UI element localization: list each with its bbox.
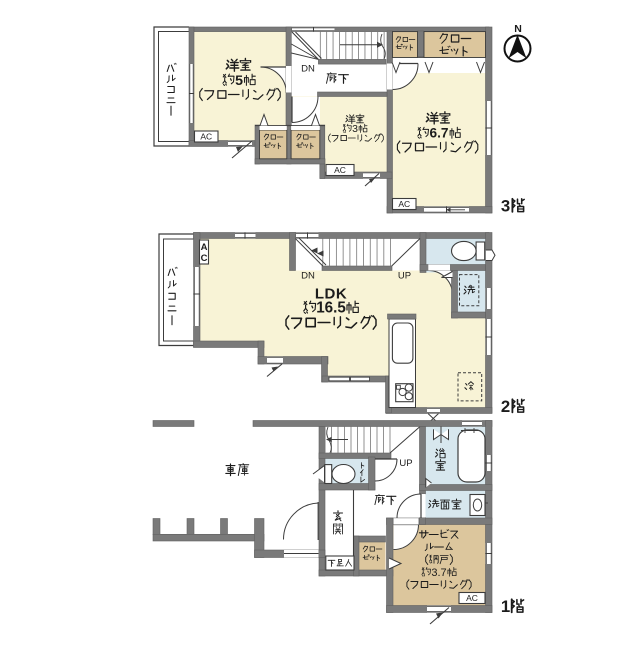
- svg-text:DN: DN: [301, 64, 315, 75]
- svg-text:6.7: 6.7: [430, 126, 449, 141]
- svg-text:AC: AC: [466, 593, 478, 603]
- svg-text:3: 3: [352, 123, 358, 135]
- svg-text:UP: UP: [399, 458, 412, 469]
- svg-text:C: C: [201, 253, 208, 264]
- svg-text:2: 2: [501, 397, 510, 416]
- svg-text:3: 3: [501, 196, 510, 215]
- svg-text:UP: UP: [398, 271, 411, 282]
- svg-text:A: A: [201, 242, 208, 253]
- svg-text:DN: DN: [301, 271, 315, 282]
- svg-text:AC: AC: [334, 165, 346, 175]
- svg-text:AC: AC: [200, 132, 212, 142]
- svg-text:16.5: 16.5: [316, 300, 346, 317]
- svg-text:1: 1: [501, 597, 510, 616]
- svg-text:5: 5: [235, 73, 243, 89]
- svg-text:N: N: [514, 23, 522, 35]
- svg-text:3.7: 3.7: [431, 567, 446, 579]
- svg-text:AC: AC: [398, 199, 410, 209]
